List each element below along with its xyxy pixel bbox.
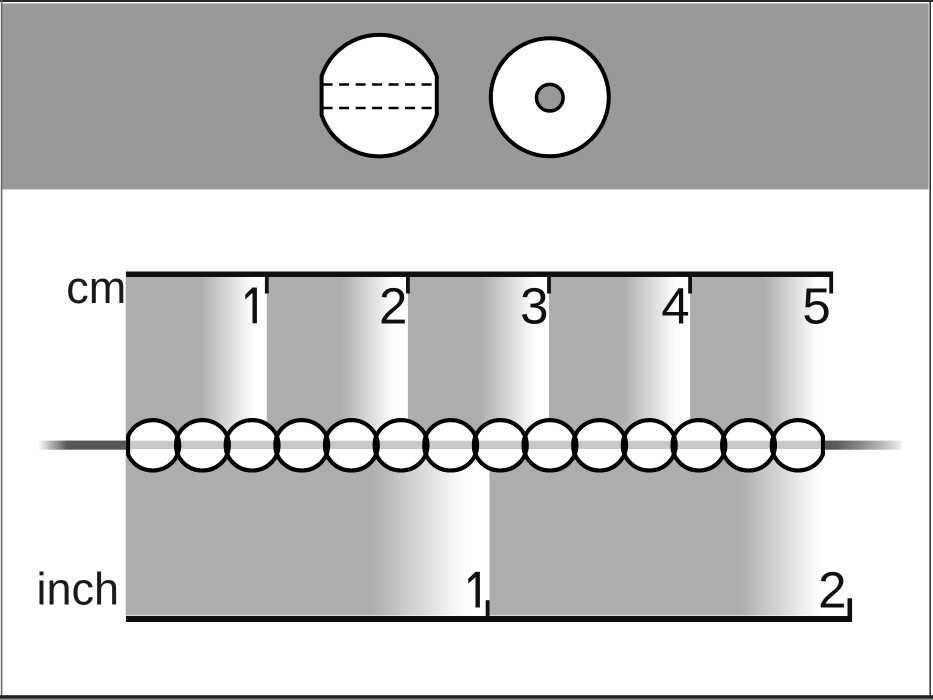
svg-text:3: 3 — [520, 277, 548, 334]
svg-text:5: 5 — [802, 277, 830, 334]
svg-text:2: 2 — [379, 277, 407, 334]
svg-text:cm: cm — [66, 262, 126, 313]
svg-text:4: 4 — [661, 277, 689, 334]
svg-text:inch: inch — [37, 563, 120, 614]
svg-text:2: 2 — [818, 562, 846, 619]
